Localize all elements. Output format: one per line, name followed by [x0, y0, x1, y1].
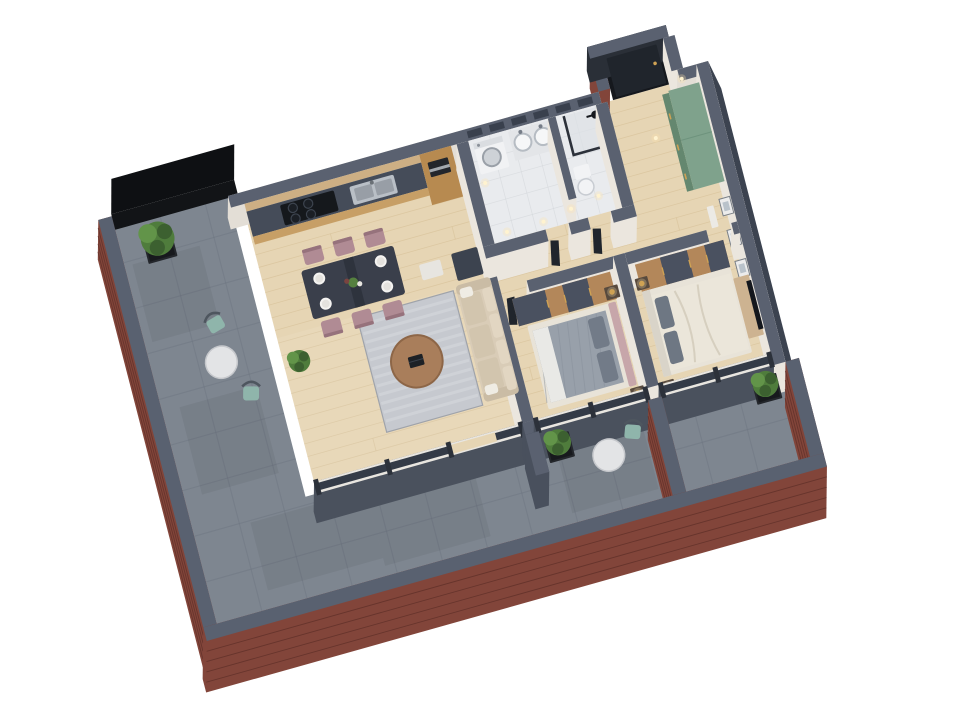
apartment-floorplan-render: [0, 0, 960, 720]
isometric-scene: [0, 0, 960, 720]
